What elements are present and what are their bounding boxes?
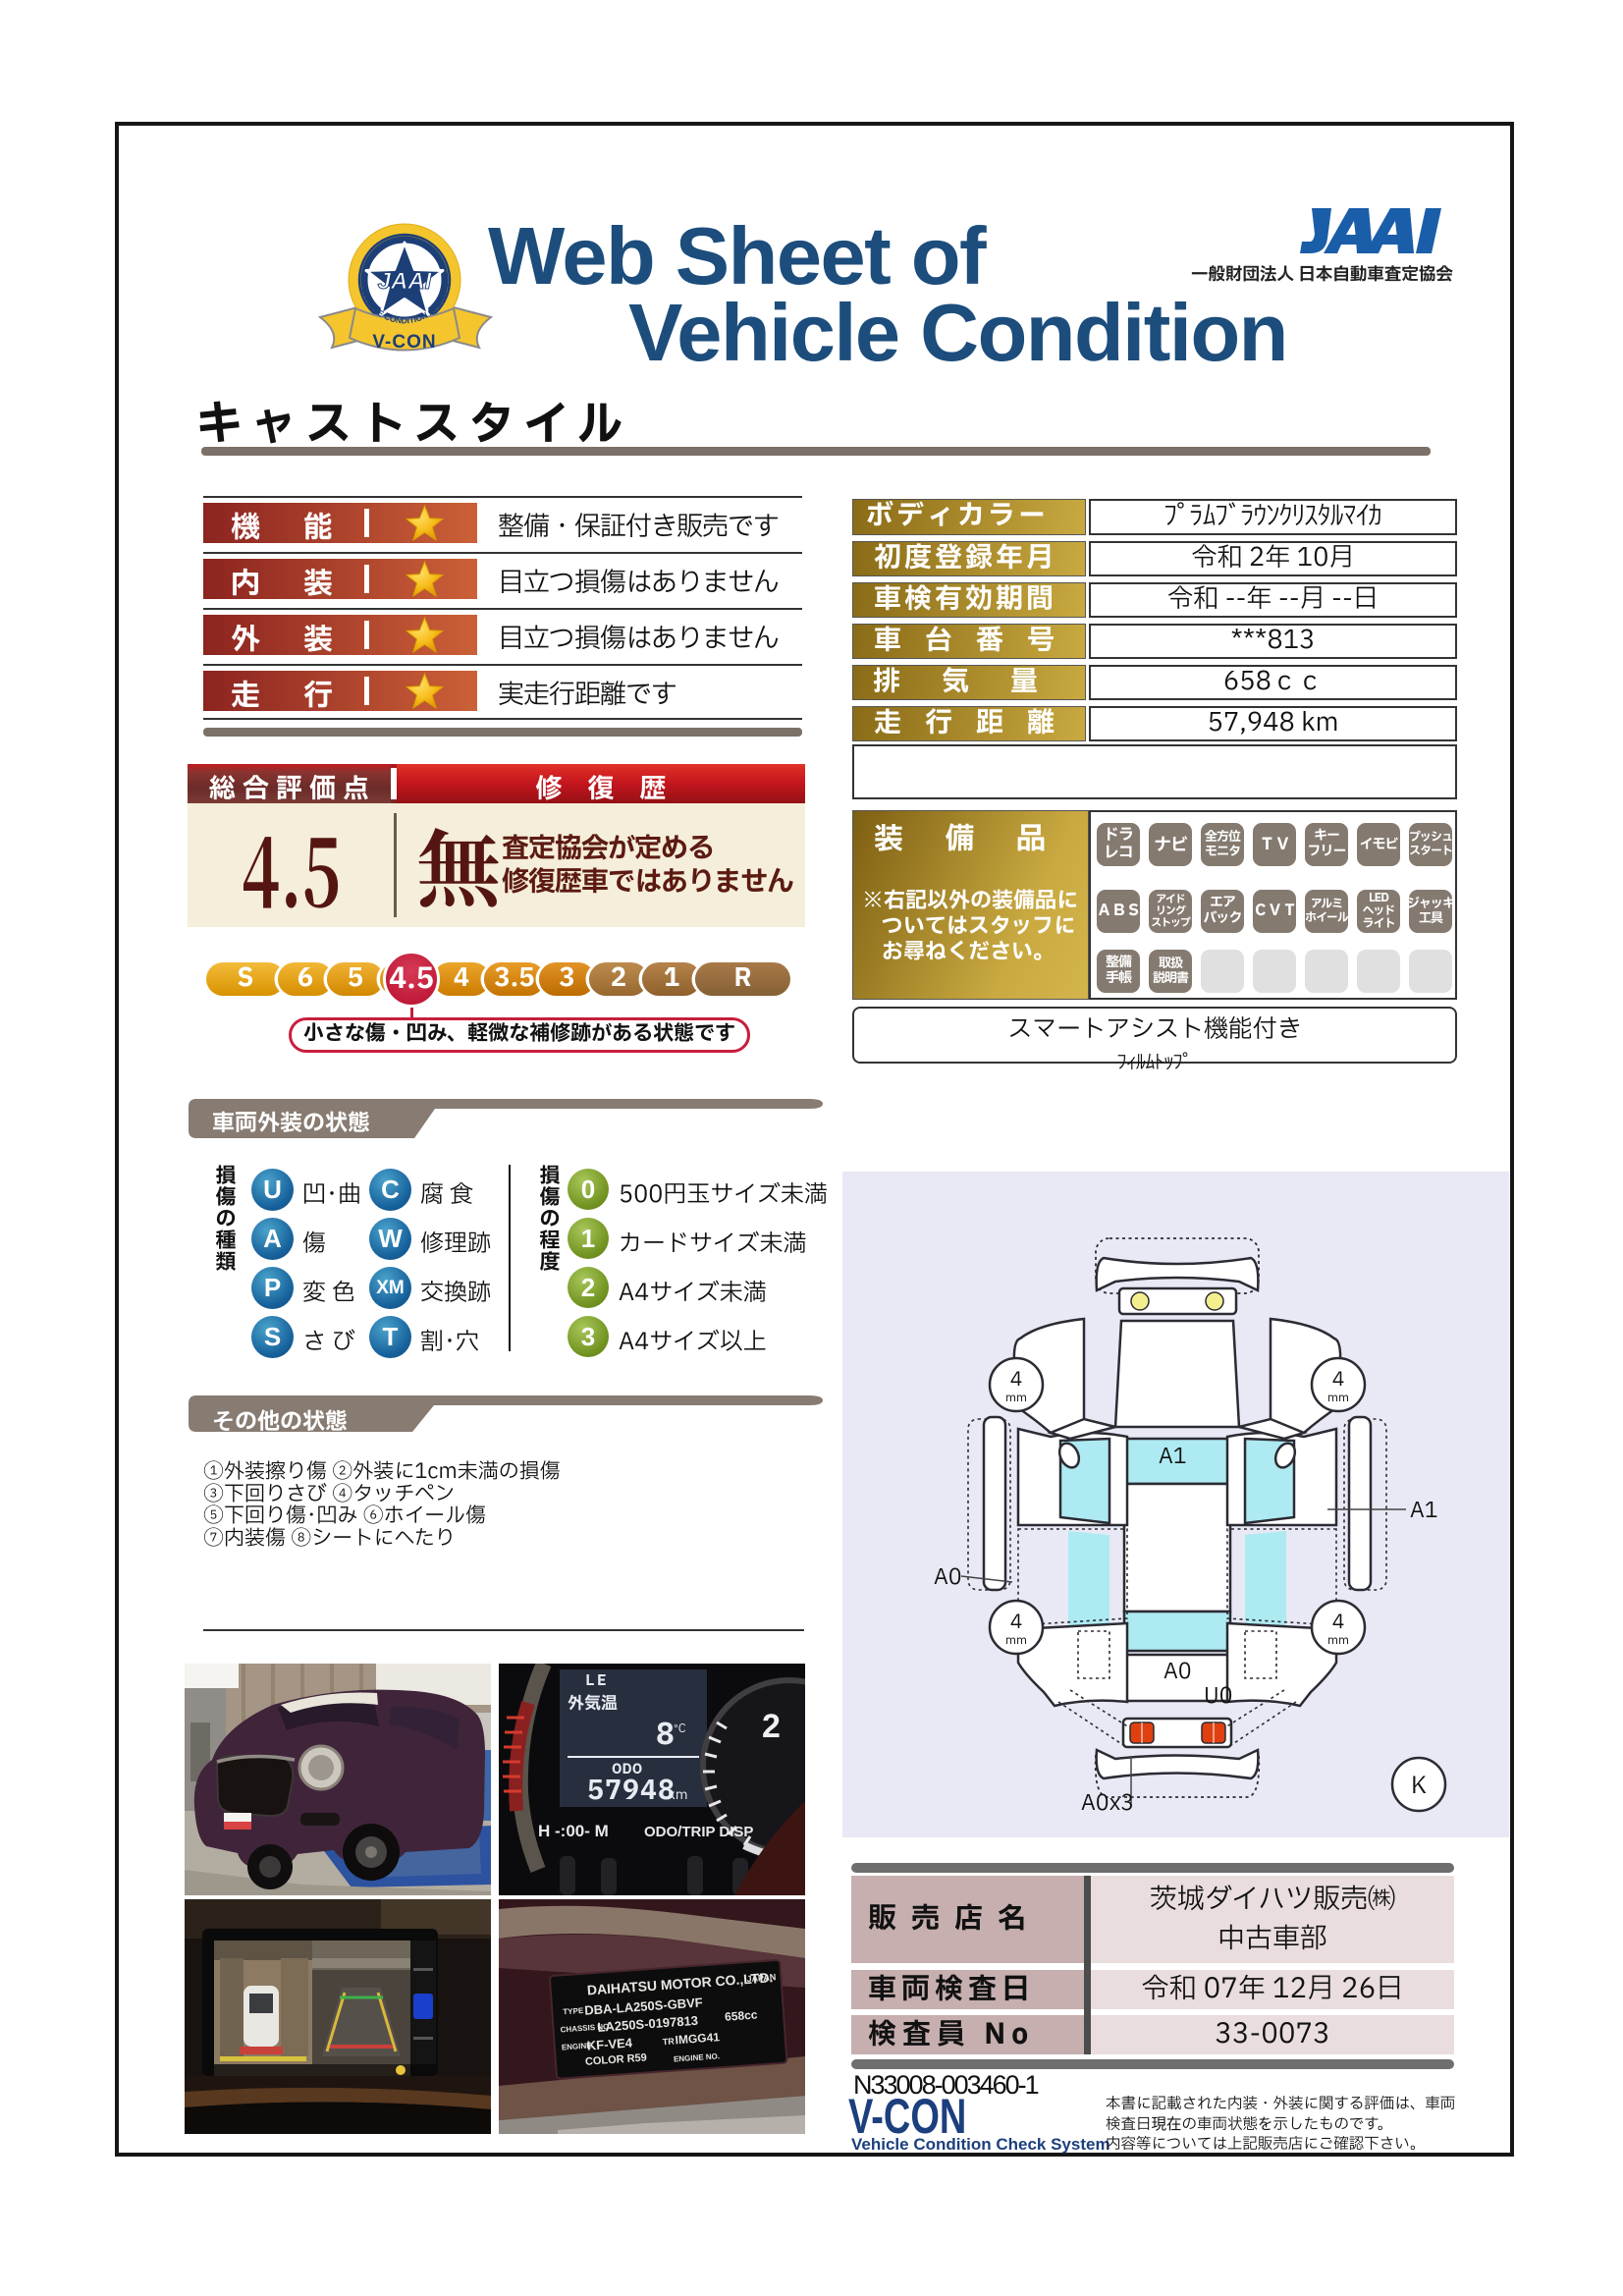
svg-text:V-CON: V-CON (372, 332, 436, 353)
svg-text:TYPE: TYPE (563, 2006, 584, 2016)
svg-text:57948: 57948 (587, 1771, 676, 1811)
svg-text:mm: mm (1327, 1390, 1349, 1407)
svg-text:A0: A0 (934, 1561, 962, 1594)
svg-text:A1: A1 (1410, 1495, 1438, 1527)
svg-text:8: 8 (656, 1714, 675, 1758)
svg-text:U0: U0 (1204, 1680, 1233, 1713)
svg-text:A0x3: A0x3 (1081, 1787, 1134, 1820)
svg-text:ODO/TRIP DISP: ODO/TRIP DISP (644, 1824, 753, 1840)
svg-text:JAPAN: JAPAN (746, 1972, 776, 1984)
svg-text:ＬE: ＬE (582, 1669, 607, 1692)
svg-text:mm: mm (1005, 1390, 1027, 1407)
svg-text:JAAI: JAAI (378, 268, 433, 295)
svg-text:mm: mm (1005, 1632, 1027, 1650)
svg-text:TR: TR (662, 2036, 675, 2047)
svg-text:658cc: 658cc (725, 2007, 759, 2023)
svg-text:mm: mm (1327, 1632, 1349, 1650)
svg-text:外気温: 外気温 (568, 1692, 618, 1717)
svg-text:km: km (668, 1785, 688, 1806)
svg-text:A1: A1 (1159, 1441, 1187, 1473)
svg-text:H -:00- M: H -:00- M (538, 1822, 609, 1840)
svg-text:K: K (1411, 1769, 1427, 1804)
svg-text:°C: °C (674, 1721, 686, 1738)
svg-text:A0: A0 (1163, 1656, 1192, 1688)
svg-text:2: 2 (762, 1708, 781, 1745)
